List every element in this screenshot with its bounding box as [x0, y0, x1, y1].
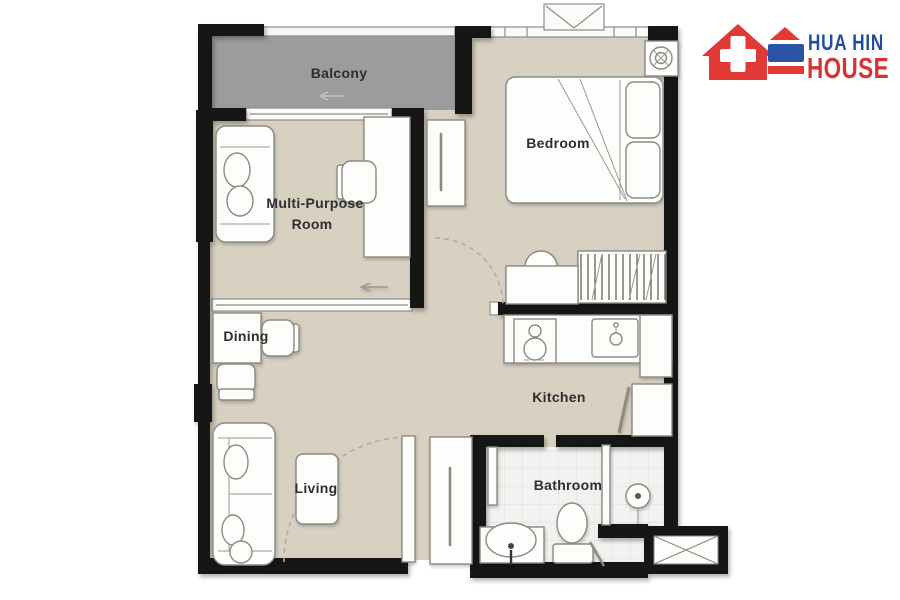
- floor-plan-image: Balcony Bedroom Multi-Purpose Room Dinin…: [0, 0, 900, 600]
- top-wall-stub: [455, 26, 491, 38]
- multi-purpose-label-line2: Room: [292, 216, 333, 232]
- left-wall-upper: [196, 110, 213, 242]
- cushion: [224, 445, 248, 479]
- daybed-sofa: [216, 126, 274, 242]
- mpr-right-wall: [410, 108, 424, 308]
- balcony-label: Balcony: [311, 65, 368, 81]
- brand-name-line2: HOUSE: [807, 53, 889, 85]
- shaft-x-box: [654, 536, 718, 564]
- logo-cross-horizontal: [720, 49, 756, 62]
- kitchen-label: Kitchen: [532, 389, 585, 405]
- multi-purpose-label-line1: Multi-Purpose: [266, 195, 363, 211]
- floor-plan-svg: Balcony Bedroom Multi-Purpose Room Dinin…: [0, 0, 900, 600]
- logo-mini-roof: [770, 27, 800, 40]
- balcony-top-wall: [198, 24, 264, 36]
- dining-bench: [219, 389, 254, 400]
- bathroom-door-leaf: [488, 447, 497, 505]
- wardrobe-hanger-lines: [578, 251, 666, 303]
- left-wall-column: [194, 384, 212, 422]
- shower-partition: [602, 445, 610, 525]
- bedroom-label: Bedroom: [526, 135, 590, 151]
- condenser-unit-box: [544, 4, 604, 30]
- entrance-cabinet: [430, 437, 472, 564]
- wardrobe: [578, 251, 666, 303]
- dining-label: Dining: [223, 328, 268, 344]
- wall-end-cap: [490, 302, 499, 315]
- bathroom-bottom-wall: [470, 562, 648, 578]
- dining-chair: [217, 364, 255, 392]
- vanity-counter: [506, 266, 578, 304]
- ac-unit: [645, 41, 678, 76]
- stove: [514, 319, 556, 363]
- cushion: [230, 541, 252, 563]
- bathroom-label: Bathroom: [534, 477, 603, 493]
- toilet-tank: [553, 544, 593, 563]
- pillow: [626, 82, 660, 138]
- kitchen-sink: [592, 319, 638, 357]
- living-sofa: [213, 423, 275, 565]
- cushion: [224, 153, 250, 187]
- brand-logo: HUA HIN HOUSE: [702, 24, 889, 85]
- house-with-cross-icon: [702, 24, 804, 80]
- hall-cabinet: [427, 120, 465, 206]
- bathroom-top-wall-right: [556, 435, 666, 447]
- cushion: [227, 186, 253, 216]
- pillow: [626, 142, 660, 198]
- bathroom-vanity: [480, 523, 544, 565]
- logo-mini-body: [768, 44, 804, 62]
- balcony-left-wall: [198, 24, 212, 114]
- bathroom-top-wall-left: [484, 435, 544, 447]
- toilet-bowl: [557, 503, 587, 543]
- balcony-door-jamb-left: [212, 108, 246, 121]
- entrance-door-leaf: [402, 436, 415, 562]
- brand-name-line1: HUA HIN: [808, 30, 884, 55]
- living-label: Living: [294, 480, 337, 496]
- logo-mini-bar: [768, 66, 804, 74]
- shower-bottom-wall: [598, 524, 648, 538]
- balcony-bedroom-wall: [455, 26, 472, 114]
